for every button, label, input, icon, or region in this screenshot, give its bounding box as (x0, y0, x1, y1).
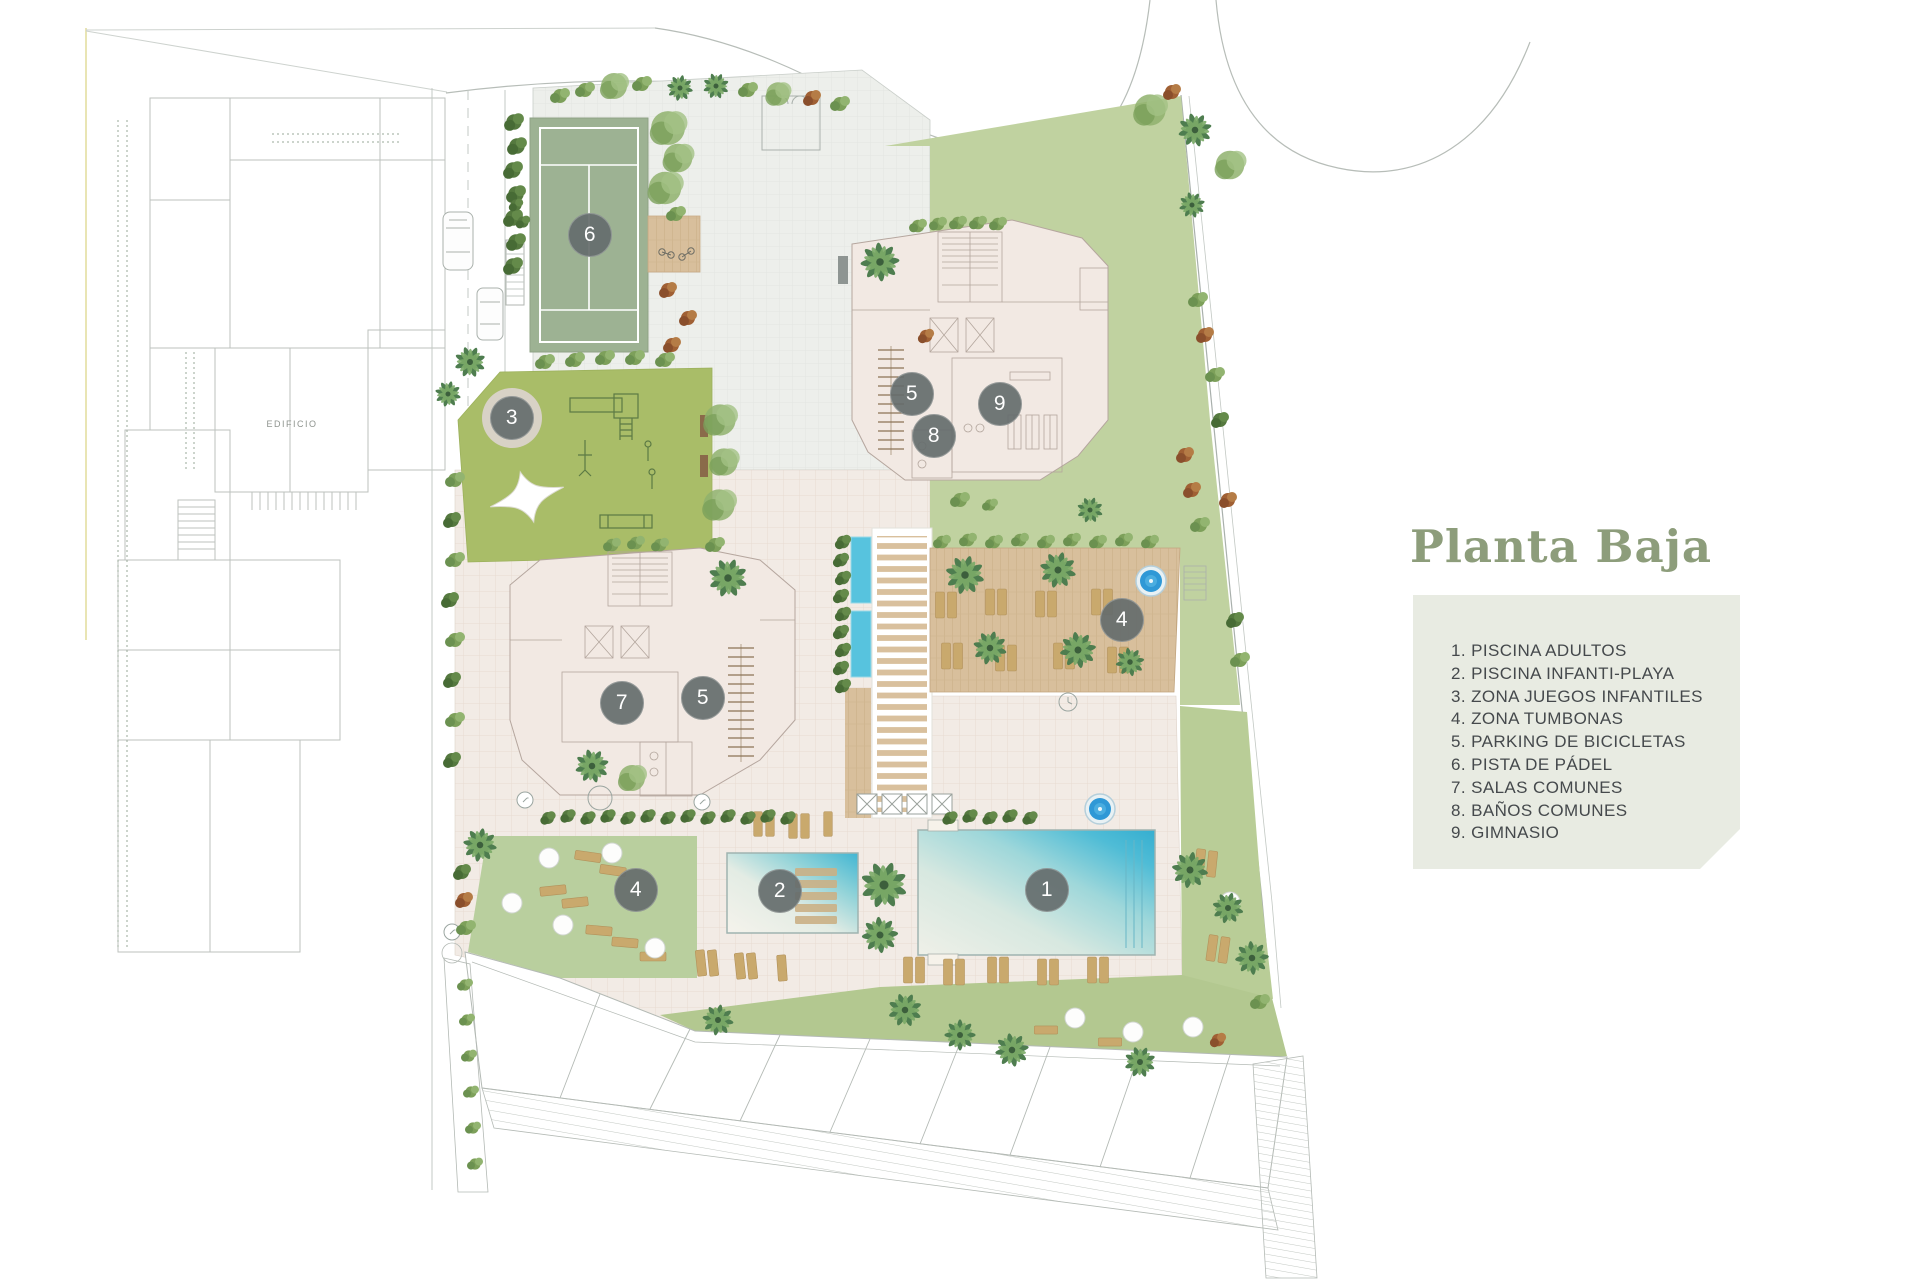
bench (838, 256, 848, 284)
neighbor-buildings (118, 98, 445, 952)
lap-pool (851, 537, 871, 603)
page-title: Planta Baja (1410, 520, 1712, 573)
marker-zona-tumbonas-jardin: 4 (614, 868, 658, 912)
bench (700, 455, 708, 477)
car (443, 212, 473, 270)
legend-item: 2. PISCINA INFANTI-PLAYA (1451, 663, 1740, 686)
legend-item: 5. PARKING DE BICICLETAS (1451, 731, 1740, 754)
car (477, 288, 503, 340)
marker-parking-bicicletas-sur: 5 (681, 676, 725, 720)
legend-item: 9. GIMNASIO (1451, 822, 1740, 845)
legend-list: 1. PISCINA ADULTOS 2. PISCINA INFANTI-PL… (1451, 640, 1740, 845)
plunge-pool (1085, 794, 1115, 824)
marker-zona-juegos-infantiles: 3 (490, 396, 534, 440)
marker-parking-bicicletas-norte: 5 (890, 372, 934, 416)
marker-salas-comunes: 7 (600, 681, 644, 725)
legend-panel: 1. PISCINA ADULTOS 2. PISCINA INFANTI-PL… (1413, 595, 1740, 869)
marker-banos-comunes: 8 (912, 414, 956, 458)
marker-zona-tumbonas-deck: 4 (1100, 598, 1144, 642)
edificio-label: EDIFICIO (266, 419, 317, 429)
marker-pista-de-padel: 6 (568, 213, 612, 257)
legend-item: 3. ZONA JUEGOS INFANTILES (1451, 686, 1740, 709)
marker-gimnasio: 9 (978, 382, 1022, 426)
legend-item: 8. BAÑOS COMUNES (1451, 800, 1740, 823)
building-south (510, 548, 795, 796)
marker-piscina-adultos: 1 (1025, 868, 1069, 912)
marker-piscina-infantil: 2 (758, 869, 802, 913)
site-plan-canvas: EDIFICIO (0, 0, 1920, 1280)
bike-deck (648, 216, 700, 272)
lap-pool (851, 611, 871, 677)
legend-item: 4. ZONA TUMBONAS (1451, 708, 1740, 731)
legend-item: 1. PISCINA ADULTOS (1451, 640, 1740, 663)
legend-item: 6. PISTA DE PÁDEL (1451, 754, 1740, 777)
plunge-pool (1136, 566, 1166, 596)
legend-item: 7. SALAS COMUNES (1451, 777, 1740, 800)
